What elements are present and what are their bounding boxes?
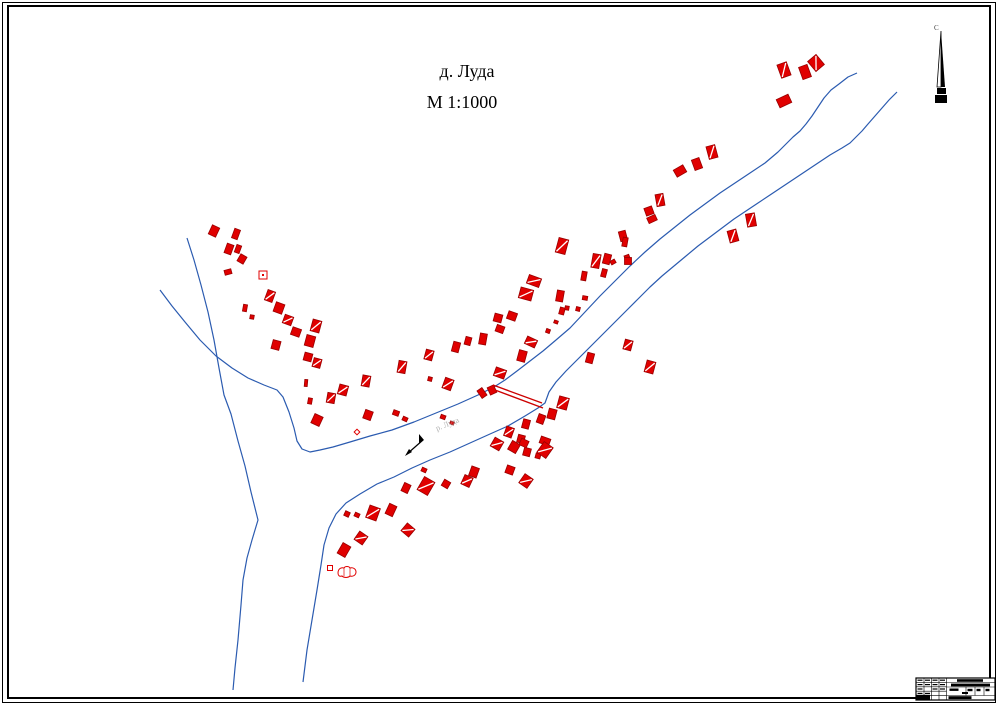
stamp-bar	[925, 680, 930, 681]
building	[799, 64, 812, 79]
building	[585, 352, 594, 363]
building-rect	[576, 307, 581, 312]
building-rect	[479, 333, 488, 345]
building	[304, 335, 316, 348]
building	[224, 269, 232, 276]
building	[344, 511, 351, 518]
building	[495, 324, 505, 333]
building	[518, 287, 533, 301]
building	[490, 437, 504, 451]
bridge-layer	[493, 385, 543, 408]
building	[354, 512, 360, 518]
stamp-bar	[940, 684, 945, 685]
building-rect	[231, 228, 240, 239]
building-rect	[505, 465, 515, 475]
building-rect	[354, 429, 360, 435]
building-rect	[556, 290, 565, 302]
stamp-bar	[925, 693, 930, 694]
building-rect	[242, 304, 247, 312]
north-arrow	[935, 31, 947, 103]
stamp-bar	[962, 692, 968, 694]
building	[337, 384, 348, 396]
building	[505, 465, 515, 475]
building	[366, 505, 381, 521]
building	[673, 165, 687, 177]
stamp-bar	[977, 689, 981, 691]
building-rect	[622, 237, 628, 247]
stamp-bar	[940, 680, 945, 681]
building-rect	[506, 311, 517, 322]
building	[328, 566, 333, 571]
building-rect	[385, 503, 397, 516]
stamp-bar	[917, 695, 931, 700]
building-rect	[250, 315, 255, 320]
building	[312, 358, 322, 369]
map-svg: д. Луда М 1:1000 р. Луда С	[0, 0, 1000, 709]
title-block	[916, 678, 995, 700]
outer-frame	[3, 3, 996, 703]
building	[479, 333, 488, 345]
building	[777, 62, 791, 79]
building	[363, 409, 374, 420]
building-rect	[304, 379, 308, 386]
building-rect	[581, 271, 587, 281]
stamp-bar	[933, 680, 938, 681]
north-arrow-base1	[937, 88, 946, 94]
building-rect	[521, 419, 530, 430]
building	[392, 410, 399, 417]
building	[554, 320, 559, 324]
building-rect	[547, 408, 557, 420]
stamp-bar	[940, 688, 945, 689]
building-rect	[554, 320, 559, 324]
river-layer	[160, 73, 897, 690]
building	[354, 531, 368, 545]
building	[326, 392, 336, 403]
building-rect	[363, 409, 374, 420]
building-rect	[237, 254, 247, 264]
building	[417, 477, 435, 496]
building-rect	[517, 350, 528, 363]
building	[644, 206, 654, 216]
building	[523, 447, 532, 457]
river-name-label: р. Луда	[434, 415, 460, 433]
river-bank	[303, 92, 897, 682]
building	[361, 375, 371, 387]
stamp-bar	[949, 696, 972, 699]
building	[591, 253, 601, 268]
building-rect	[354, 512, 360, 518]
building-rect	[304, 335, 316, 348]
building	[706, 145, 718, 160]
building-rect	[308, 398, 313, 405]
building	[250, 315, 255, 320]
building	[477, 388, 487, 399]
north-arrow-base2	[935, 95, 947, 103]
building-rect	[477, 388, 487, 399]
building-rect	[401, 482, 411, 493]
building	[776, 94, 792, 108]
building	[745, 213, 756, 227]
building	[424, 349, 434, 361]
building	[691, 157, 702, 170]
building-rect	[559, 307, 566, 315]
map-scale: М 1:1000	[427, 92, 498, 112]
building	[582, 296, 588, 301]
building-rect	[776, 94, 792, 108]
building-rect	[224, 269, 232, 276]
building	[271, 340, 281, 351]
building-rect	[311, 414, 323, 427]
building-rect	[428, 377, 433, 382]
flow-arrow	[405, 434, 424, 456]
stamp-bar	[918, 684, 923, 685]
building-rect	[565, 306, 570, 311]
building	[401, 523, 415, 537]
building	[310, 319, 322, 333]
building	[402, 416, 408, 422]
building	[526, 275, 541, 288]
building	[442, 377, 454, 390]
building-rect	[402, 416, 408, 422]
building-rect	[799, 64, 812, 79]
stamp-bar	[918, 688, 923, 689]
building	[469, 466, 480, 478]
building	[625, 258, 632, 265]
building	[655, 193, 665, 206]
building	[303, 352, 313, 362]
building	[545, 328, 550, 333]
map-title: д. Луда	[440, 61, 495, 81]
building	[397, 360, 407, 373]
building-rect	[625, 258, 632, 265]
building	[308, 398, 313, 405]
building	[231, 228, 240, 239]
building-rect	[601, 268, 608, 277]
building-rect	[344, 511, 351, 518]
building-rect	[208, 225, 219, 237]
building-rect	[337, 543, 351, 558]
building-rect	[493, 313, 503, 323]
building-rect	[392, 410, 399, 417]
stamp-bar	[933, 684, 938, 685]
building	[556, 290, 565, 302]
building	[581, 271, 587, 281]
building	[337, 543, 351, 558]
building	[517, 350, 528, 363]
building	[451, 341, 460, 352]
building	[493, 367, 506, 379]
bridge-line	[493, 385, 542, 403]
building	[565, 306, 570, 311]
building	[385, 503, 397, 516]
north-arrow-right	[941, 31, 945, 87]
building	[354, 429, 360, 435]
building-layer	[208, 54, 824, 577]
building	[282, 314, 294, 326]
building	[644, 360, 656, 374]
building-rect	[451, 341, 460, 352]
building-rect	[303, 352, 313, 362]
building	[273, 302, 285, 314]
stamp-bar	[925, 684, 930, 685]
building-rect	[523, 447, 532, 457]
building	[224, 243, 234, 255]
building-rect	[585, 352, 594, 363]
building-rect	[536, 414, 546, 425]
stamp-bar	[950, 689, 959, 691]
building-rect	[545, 328, 550, 333]
building	[808, 54, 825, 71]
building	[264, 289, 275, 302]
building-rect	[644, 206, 654, 216]
building	[524, 336, 537, 348]
building	[311, 414, 323, 427]
building	[440, 414, 446, 419]
building	[259, 271, 267, 279]
building	[557, 396, 570, 410]
building	[601, 268, 608, 277]
building	[519, 474, 534, 489]
building-rect	[421, 467, 427, 473]
building-rect	[582, 296, 588, 301]
building-blob	[338, 567, 356, 578]
building-rect	[440, 414, 446, 419]
building	[493, 313, 503, 323]
building	[727, 229, 739, 243]
building	[506, 311, 517, 322]
drawing-sheet: д. Луда М 1:1000 р. Луда С	[0, 0, 1000, 709]
north-arrow-left	[937, 31, 941, 87]
inner-frame	[8, 6, 990, 698]
building-rect	[673, 165, 687, 177]
building	[421, 467, 427, 473]
building	[234, 244, 241, 253]
bridge-line	[495, 390, 543, 408]
building	[242, 304, 247, 312]
building-rect	[495, 324, 505, 333]
north-label: С	[934, 24, 939, 32]
stamp-bar	[957, 679, 983, 682]
building	[208, 225, 219, 237]
building	[521, 419, 530, 430]
stamp-bar	[918, 693, 923, 694]
building	[623, 339, 633, 351]
building	[536, 414, 546, 425]
building-rect	[271, 340, 281, 351]
building	[555, 237, 569, 254]
building-rect	[464, 336, 472, 345]
building	[464, 336, 472, 345]
stamp-bar	[968, 689, 973, 691]
building	[338, 567, 356, 578]
building-rect	[441, 479, 451, 489]
building	[622, 237, 628, 247]
building	[559, 307, 566, 315]
stamp-bar	[933, 688, 938, 689]
building	[290, 327, 301, 338]
building	[401, 482, 411, 493]
building	[547, 408, 557, 420]
building-rect	[273, 302, 285, 314]
building	[237, 254, 247, 264]
building-rect	[328, 566, 333, 571]
building-rect	[469, 466, 480, 478]
building-rect	[691, 157, 702, 170]
building	[441, 479, 451, 489]
stamp-bar	[951, 684, 990, 687]
building-rect	[224, 243, 234, 255]
building	[428, 377, 433, 382]
building-rect	[290, 327, 301, 338]
stamp-bar	[986, 689, 990, 691]
building-rect	[234, 244, 241, 253]
building	[576, 307, 581, 312]
stamp-bar	[918, 680, 923, 681]
building	[304, 379, 308, 386]
